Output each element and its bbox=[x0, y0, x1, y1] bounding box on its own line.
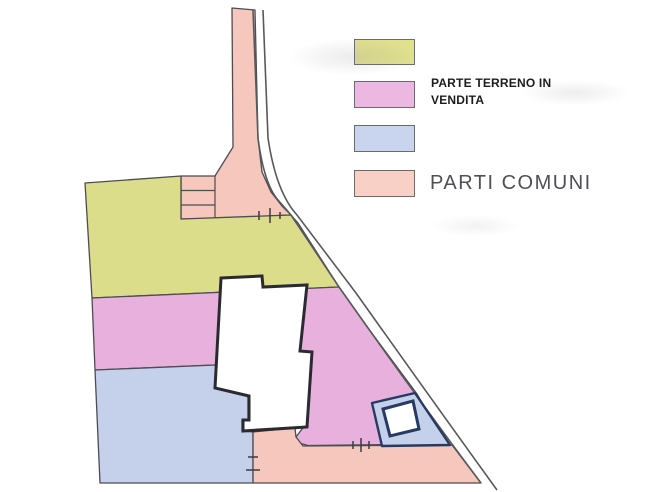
legend-swatch-peach bbox=[354, 170, 415, 197]
parcel-common-driveway bbox=[181, 8, 291, 219]
site-plan-page: PARTE TERRENO IN VENDITA PARTI COMUNI bbox=[0, 0, 648, 492]
legend-label-parti-comuni: PARTI COMUNI bbox=[430, 172, 640, 195]
outbuilding-square bbox=[383, 401, 419, 436]
legend-label-parte-terreno-in-vendita: PARTE TERRENO IN VENDITA bbox=[431, 75, 581, 109]
site-plan-drawing bbox=[0, 0, 648, 492]
legend-swatch-blue bbox=[354, 125, 415, 152]
legend-swatch-yellow bbox=[354, 39, 415, 65]
legend-swatch-pink bbox=[354, 81, 415, 108]
